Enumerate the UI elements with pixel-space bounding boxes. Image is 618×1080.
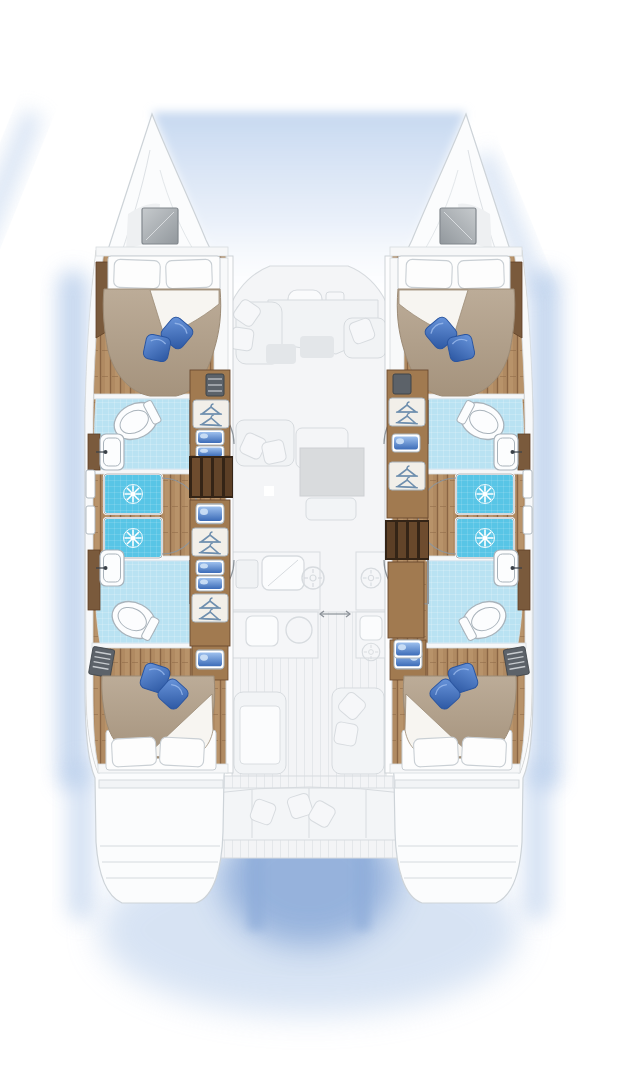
storage-bin-icon <box>196 430 224 445</box>
seat-cushion <box>266 344 296 364</box>
storage-bin-icon <box>196 560 224 575</box>
companionway-stairs <box>385 520 429 560</box>
hanging-locker <box>192 594 228 622</box>
hanging-locker <box>192 528 228 556</box>
bench <box>306 498 356 520</box>
ghost-pillow <box>333 721 358 746</box>
storage-bin-icon <box>196 576 224 591</box>
floor-hatch <box>264 486 274 496</box>
seat-cushion <box>300 336 334 358</box>
port-inboard-cabinets <box>189 370 233 646</box>
stbd-inboard-cabinets <box>385 370 429 658</box>
galley-ghost <box>232 552 386 661</box>
vanity-basin-icon <box>394 640 422 658</box>
hanging-locker <box>193 400 229 428</box>
appliance <box>236 560 258 588</box>
galley-sink <box>360 616 382 640</box>
floorplan-canvas <box>0 0 618 1080</box>
catamaran-floorplan <box>0 0 618 1080</box>
storage-bin-icon <box>392 434 420 452</box>
ghost-pillow <box>261 439 287 465</box>
vanity-basin-icon <box>196 504 224 524</box>
galley-sink <box>246 616 278 646</box>
hanging-locker <box>389 398 425 426</box>
vent-panel <box>393 374 411 394</box>
hanging-locker <box>389 462 425 490</box>
dining-table <box>300 448 364 496</box>
companionway-stairs <box>189 456 233 498</box>
